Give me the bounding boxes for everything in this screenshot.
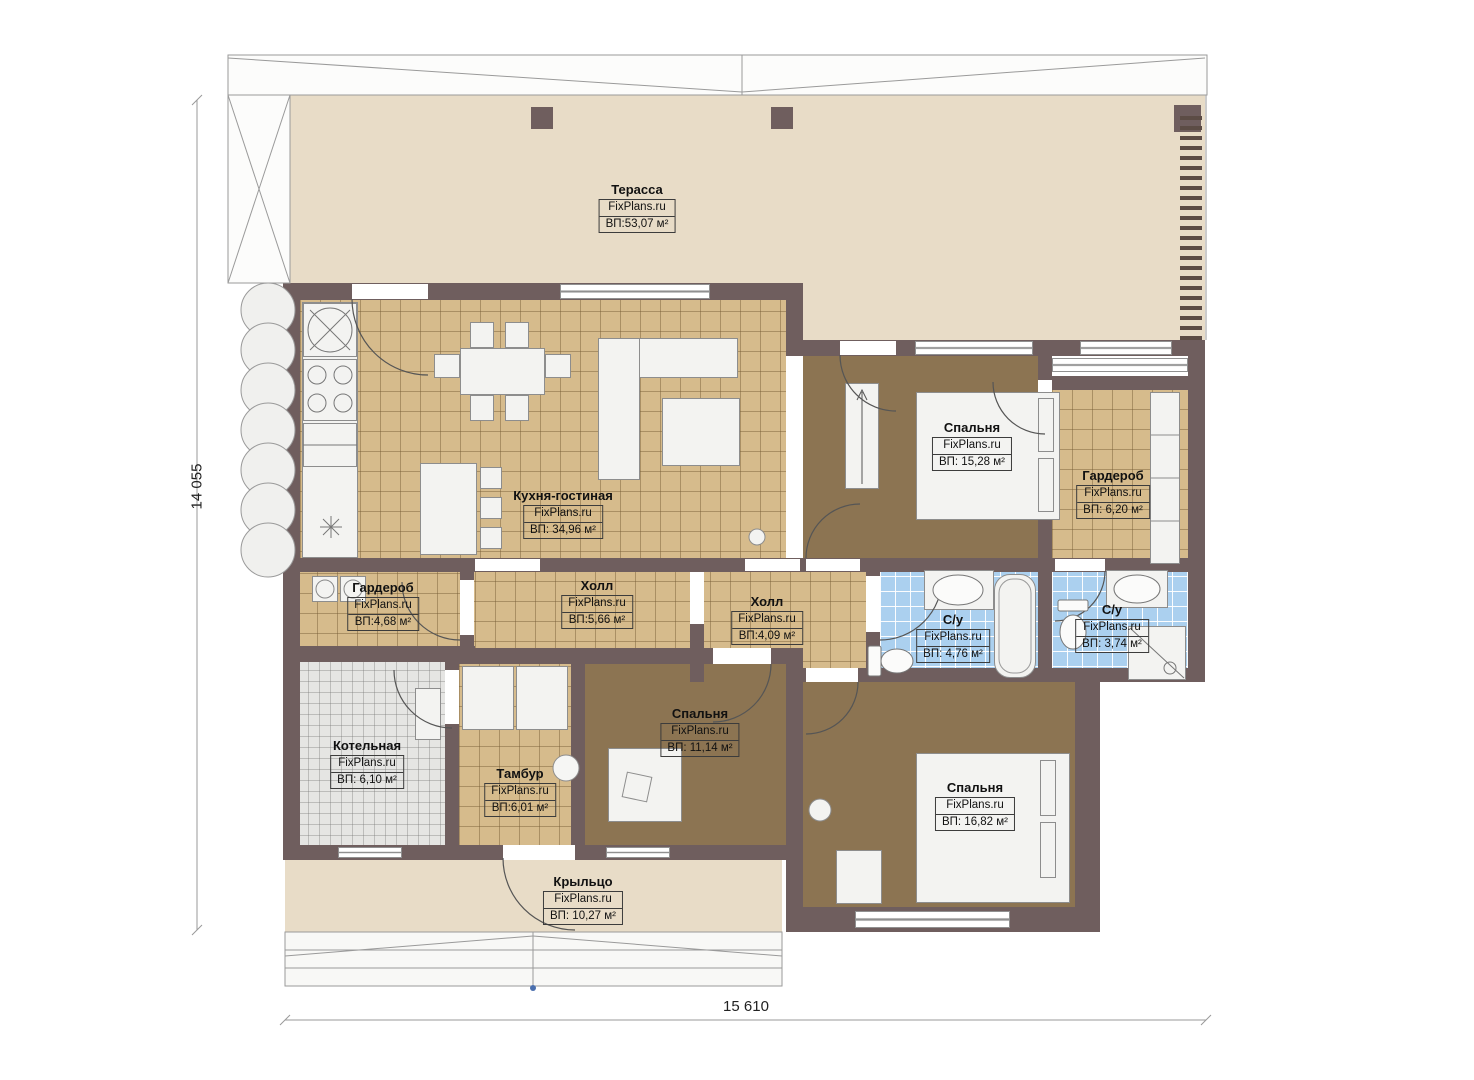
brand-watermark: FixPlans.ru [544,892,622,909]
window [855,911,1010,928]
door-opening [840,341,896,355]
room-label-bedroom3: Спальня FixPlans.ruВП: 16,82 м² [935,780,1015,831]
kitchen-cabinet [303,423,357,467]
room-area: ВП:6,01 м² [485,801,555,817]
room-name: Кухня-гостиная [513,488,613,503]
bar-stool [480,467,502,489]
pillow [1038,398,1054,452]
window [338,847,402,858]
room-label-hall2: Холл FixPlans.ruВП:4,09 м² [731,594,803,645]
pillow [1040,760,1056,816]
room-label-bathroom2: С/у FixPlans.ruВП: 3,74 м² [1075,602,1149,653]
room-label-kitchen-living: Кухня-гостиная FixPlans.ruВП: 34,96 м² [513,488,613,539]
dining-table [460,348,545,395]
wall-segment [1188,340,1205,682]
sofa [598,338,640,480]
washer [312,576,338,602]
room-area: ВП: 10,27 м² [544,909,622,925]
window [606,847,670,858]
terrace-column [771,107,793,129]
door-opening [690,572,704,624]
room-label-tambour: Тамбур FixPlans.ruВП:6,01 м² [484,766,556,817]
floor-plan: Терасса FixPlans.ruВП:53,07 м² Кухня-гос… [0,0,1474,1080]
room-area: ВП:4,68 м² [348,615,418,631]
room-label-bedroom2: Спальня FixPlans.ruВП: 11,14 м² [660,706,739,757]
room-label-wardrobe1: Гардероб FixPlans.ruВП: 6,20 м² [1076,468,1150,519]
porch-steps [285,932,782,991]
room-area: ВП: 11,14 м² [661,741,738,757]
room-label-wardrobe2: Гардероб FixPlans.ruВП:4,68 м² [347,580,419,631]
dining-chair [434,354,460,378]
room-area: ВП: 15,28 м² [933,455,1011,471]
room-name: Холл [561,578,633,593]
room-name: Крыльцо [543,874,623,889]
pillow [1038,458,1054,512]
wall-segment [571,648,585,847]
door-opening [503,845,575,860]
brand-watermark: FixPlans.ru [732,612,802,629]
dining-chair [470,395,494,421]
dining-chair [505,322,529,348]
kitchen-island [420,463,477,555]
window [1052,358,1188,372]
brand-watermark: FixPlans.ru [562,596,632,613]
brand-watermark: FixPlans.ru [524,506,602,523]
dining-chair [505,395,529,421]
door-opening [445,670,459,724]
door-opening [745,559,800,571]
brand-watermark: FixPlans.ru [1077,486,1149,503]
room-name: Спальня [935,780,1015,795]
brand-watermark: FixPlans.ru [661,724,738,741]
room-area: ВП:4,09 м² [732,629,802,645]
room-label-porch: Крыльцо FixPlans.ruВП: 10,27 м² [543,874,623,925]
brand-watermark: FixPlans.ru [485,784,555,801]
door-opening [352,284,428,299]
room-area: ВП: 16,82 м² [936,815,1014,831]
door-opening [806,668,858,682]
brand-watermark: FixPlans.ru [1076,620,1148,637]
brand-watermark: FixPlans.ru [348,598,418,615]
door-opening [713,648,771,664]
room-name: С/у [1075,602,1149,617]
room-area: ВП: 4,76 м² [917,647,989,663]
dining-chair [545,354,571,378]
wardrobe-shelves [1150,392,1180,564]
bar-stool [480,497,502,519]
door-opening [460,580,474,635]
room-name: Гардероб [347,580,419,595]
door-opening [806,559,860,571]
room-area: ВП: 3,74 м² [1076,637,1148,653]
kitchen-sink [303,303,357,357]
boiler-unit [415,688,441,740]
room-porch-floor [285,858,782,932]
room-name: С/у [916,612,990,627]
bathroom-sink-counter [924,570,994,610]
terrace-railing [1180,116,1202,340]
room-name: Спальня [932,420,1012,435]
bathtub [994,574,1036,678]
bar-stool [480,527,502,549]
wall-segment [786,648,803,907]
coffee-table [662,398,740,466]
dining-chair [470,322,494,348]
room-area: ВП: 34,96 м² [524,523,602,539]
chair [622,772,653,803]
dimension-width-label: 15 610 [700,998,792,1015]
door-opening [1055,559,1105,571]
kitchen-stove [303,359,357,421]
brand-watermark: FixPlans.ru [331,756,403,773]
room-name: Тамбур [484,766,556,781]
door-opening [866,576,880,632]
room-name: Холл [731,594,803,609]
room-label-hall1: Холл FixPlans.ruВП:5,66 м² [561,578,633,629]
closet [516,666,568,730]
window [560,284,710,299]
window [915,341,1033,355]
desk [836,850,882,904]
terrace-column [531,107,553,129]
room-name: Котельная [330,738,404,753]
brand-watermark: FixPlans.ru [936,798,1014,815]
room-label-bedroom1: Спальня FixPlans.ruВП: 15,28 м² [932,420,1012,471]
room-area: ВП:5,66 м² [562,613,632,629]
door-opening [475,559,540,571]
room-label-bathroom1: С/у FixPlans.ruВП: 4,76 м² [916,612,990,663]
room-area: ВП: 6,20 м² [1077,503,1149,519]
wall-segment [1075,682,1100,932]
closet [462,666,514,730]
pillow [1040,822,1056,878]
wall-segment [1052,376,1188,390]
dimension-height-label: 14 055 [189,442,206,532]
room-name: Терасса [599,182,676,197]
window [1080,341,1172,355]
wall-segment [283,646,475,662]
room-area: ВП: 6,10 м² [331,773,403,789]
brand-watermark: FixPlans.ru [933,438,1011,455]
room-label-terrace: Терасса FixPlans.ruВП:53,07 м² [599,182,676,233]
room-name: Спальня [660,706,739,721]
brand-watermark: FixPlans.ru [917,630,989,647]
room-area: ВП:53,07 м² [600,217,675,233]
room-label-boiler: Котельная FixPlans.ruВП: 6,10 м² [330,738,404,789]
room-name: Гардероб [1076,468,1150,483]
radiator [845,383,879,489]
brand-watermark: FixPlans.ru [600,200,675,217]
